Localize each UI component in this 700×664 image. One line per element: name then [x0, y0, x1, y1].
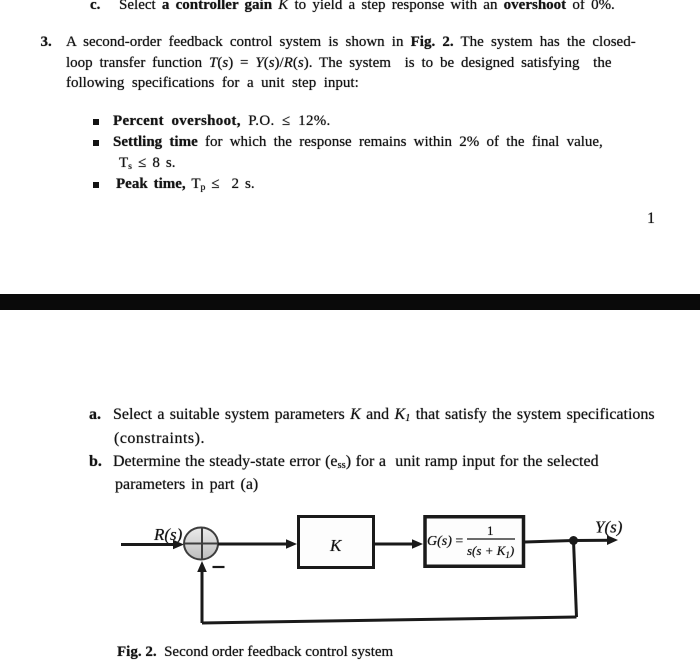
svg-text:1: 1	[487, 523, 494, 538]
svg-text:K: K	[329, 536, 343, 555]
svg-text:R(s): R(s)	[153, 525, 183, 544]
svg-text:G(s) =: G(s) =	[427, 534, 463, 549]
svg-text:Y(s): Y(s)	[595, 518, 623, 537]
